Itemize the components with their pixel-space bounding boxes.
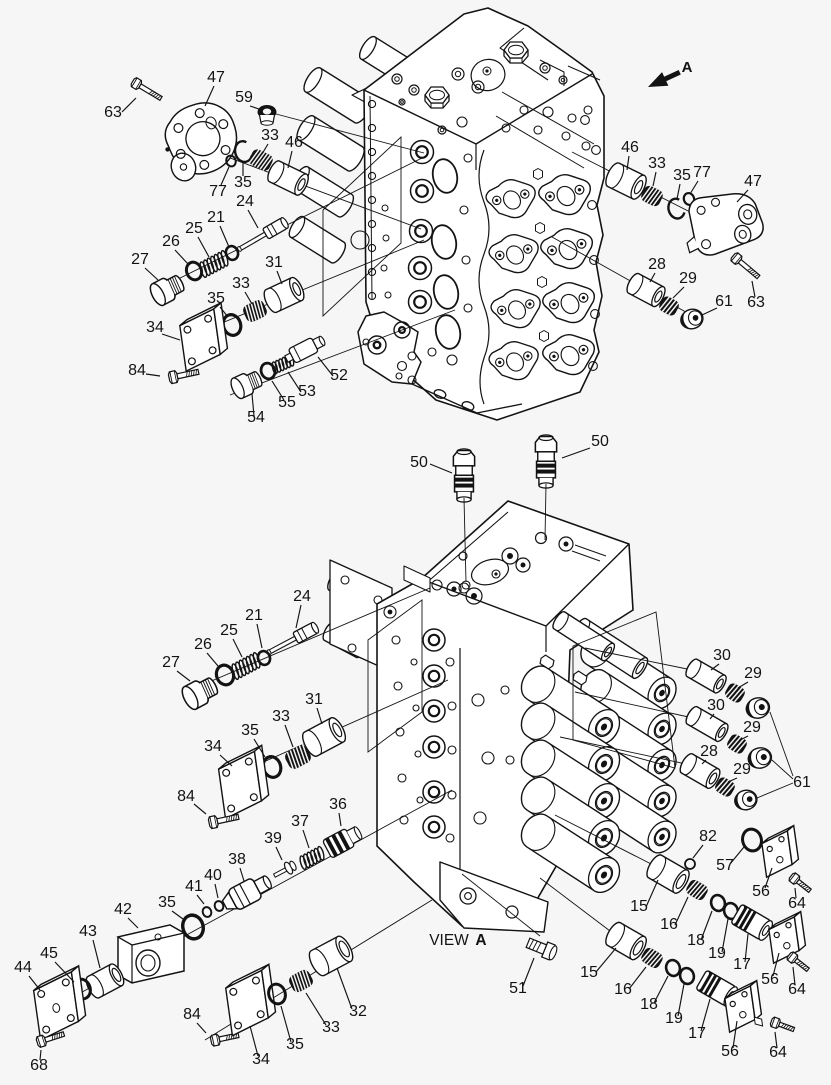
svg-text:39: 39 — [264, 830, 282, 847]
svg-text:56: 56 — [752, 883, 770, 900]
svg-text:32: 32 — [349, 1003, 367, 1020]
svg-text:45: 45 — [40, 945, 58, 962]
svg-text:52: 52 — [330, 367, 348, 384]
svg-text:15: 15 — [580, 964, 598, 981]
svg-text:18: 18 — [640, 996, 658, 1013]
svg-text:34: 34 — [204, 738, 222, 755]
svg-text:21: 21 — [245, 607, 263, 624]
svg-text:30: 30 — [713, 647, 731, 664]
svg-text:16: 16 — [660, 916, 678, 933]
svg-text:64: 64 — [788, 895, 806, 912]
svg-text:40: 40 — [204, 867, 222, 884]
svg-text:17: 17 — [688, 1025, 706, 1042]
svg-text:29: 29 — [743, 719, 761, 736]
svg-text:77: 77 — [209, 183, 227, 200]
svg-text:61: 61 — [715, 293, 733, 310]
svg-text:56: 56 — [761, 971, 779, 988]
svg-text:16: 16 — [614, 981, 632, 998]
svg-text:41: 41 — [185, 878, 203, 895]
svg-text:VIEW: VIEW — [429, 932, 469, 949]
svg-text:47: 47 — [207, 69, 225, 86]
svg-text:34: 34 — [146, 319, 164, 336]
svg-text:29: 29 — [733, 761, 751, 778]
svg-text:19: 19 — [665, 1010, 683, 1027]
svg-text:50: 50 — [410, 454, 428, 471]
svg-text:27: 27 — [131, 251, 149, 268]
svg-text:28: 28 — [648, 256, 666, 273]
svg-text:35: 35 — [241, 722, 259, 739]
svg-text:46: 46 — [285, 134, 303, 151]
svg-text:26: 26 — [194, 636, 212, 653]
svg-text:56: 56 — [721, 1043, 739, 1060]
svg-text:24: 24 — [236, 193, 254, 210]
svg-text:31: 31 — [305, 691, 323, 708]
svg-text:21: 21 — [207, 209, 225, 226]
svg-text:82: 82 — [699, 828, 717, 845]
svg-text:A: A — [475, 932, 486, 949]
svg-text:84: 84 — [177, 788, 195, 805]
svg-text:15: 15 — [630, 898, 648, 915]
svg-text:31: 31 — [265, 254, 283, 271]
svg-text:24: 24 — [293, 588, 311, 605]
svg-text:63: 63 — [747, 294, 765, 311]
svg-text:84: 84 — [128, 362, 146, 379]
svg-text:50: 50 — [591, 433, 609, 450]
svg-text:35: 35 — [673, 167, 691, 184]
svg-text:44: 44 — [14, 959, 32, 976]
svg-text:29: 29 — [744, 665, 762, 682]
svg-text:38: 38 — [228, 851, 246, 868]
svg-text:33: 33 — [232, 275, 250, 292]
svg-text:35: 35 — [234, 174, 252, 191]
svg-text:19: 19 — [708, 945, 726, 962]
svg-text:25: 25 — [185, 220, 203, 237]
svg-text:64: 64 — [769, 1044, 787, 1061]
svg-text:64: 64 — [788, 981, 806, 998]
svg-text:84: 84 — [183, 1006, 201, 1023]
svg-text:47: 47 — [744, 173, 762, 190]
svg-text:63: 63 — [104, 104, 122, 121]
svg-text:33: 33 — [322, 1019, 340, 1036]
svg-text:61: 61 — [793, 774, 811, 791]
svg-text:51: 51 — [509, 980, 527, 997]
svg-text:35: 35 — [207, 290, 225, 307]
svg-text:18: 18 — [687, 932, 705, 949]
svg-text:A: A — [682, 59, 693, 76]
svg-text:25: 25 — [220, 622, 238, 639]
svg-text:53: 53 — [298, 383, 316, 400]
svg-text:36: 36 — [329, 796, 347, 813]
svg-text:27: 27 — [162, 654, 180, 671]
svg-text:34: 34 — [252, 1051, 270, 1068]
svg-text:30: 30 — [707, 697, 725, 714]
svg-text:77: 77 — [693, 164, 711, 181]
svg-text:59: 59 — [235, 89, 253, 106]
svg-text:28: 28 — [700, 743, 718, 760]
svg-text:35: 35 — [286, 1036, 304, 1053]
svg-text:17: 17 — [733, 956, 751, 973]
svg-text:42: 42 — [114, 901, 132, 918]
svg-text:57: 57 — [716, 857, 734, 874]
svg-text:33: 33 — [261, 127, 279, 144]
svg-text:55: 55 — [278, 394, 296, 411]
svg-text:68: 68 — [30, 1057, 48, 1074]
svg-text:35: 35 — [158, 894, 176, 911]
svg-text:26: 26 — [162, 233, 180, 250]
svg-text:37: 37 — [291, 813, 309, 830]
svg-text:46: 46 — [621, 139, 639, 156]
svg-text:29: 29 — [679, 270, 697, 287]
svg-text:33: 33 — [648, 155, 666, 172]
svg-text:54: 54 — [247, 409, 265, 426]
svg-text:43: 43 — [79, 923, 97, 940]
svg-text:33: 33 — [272, 708, 290, 725]
